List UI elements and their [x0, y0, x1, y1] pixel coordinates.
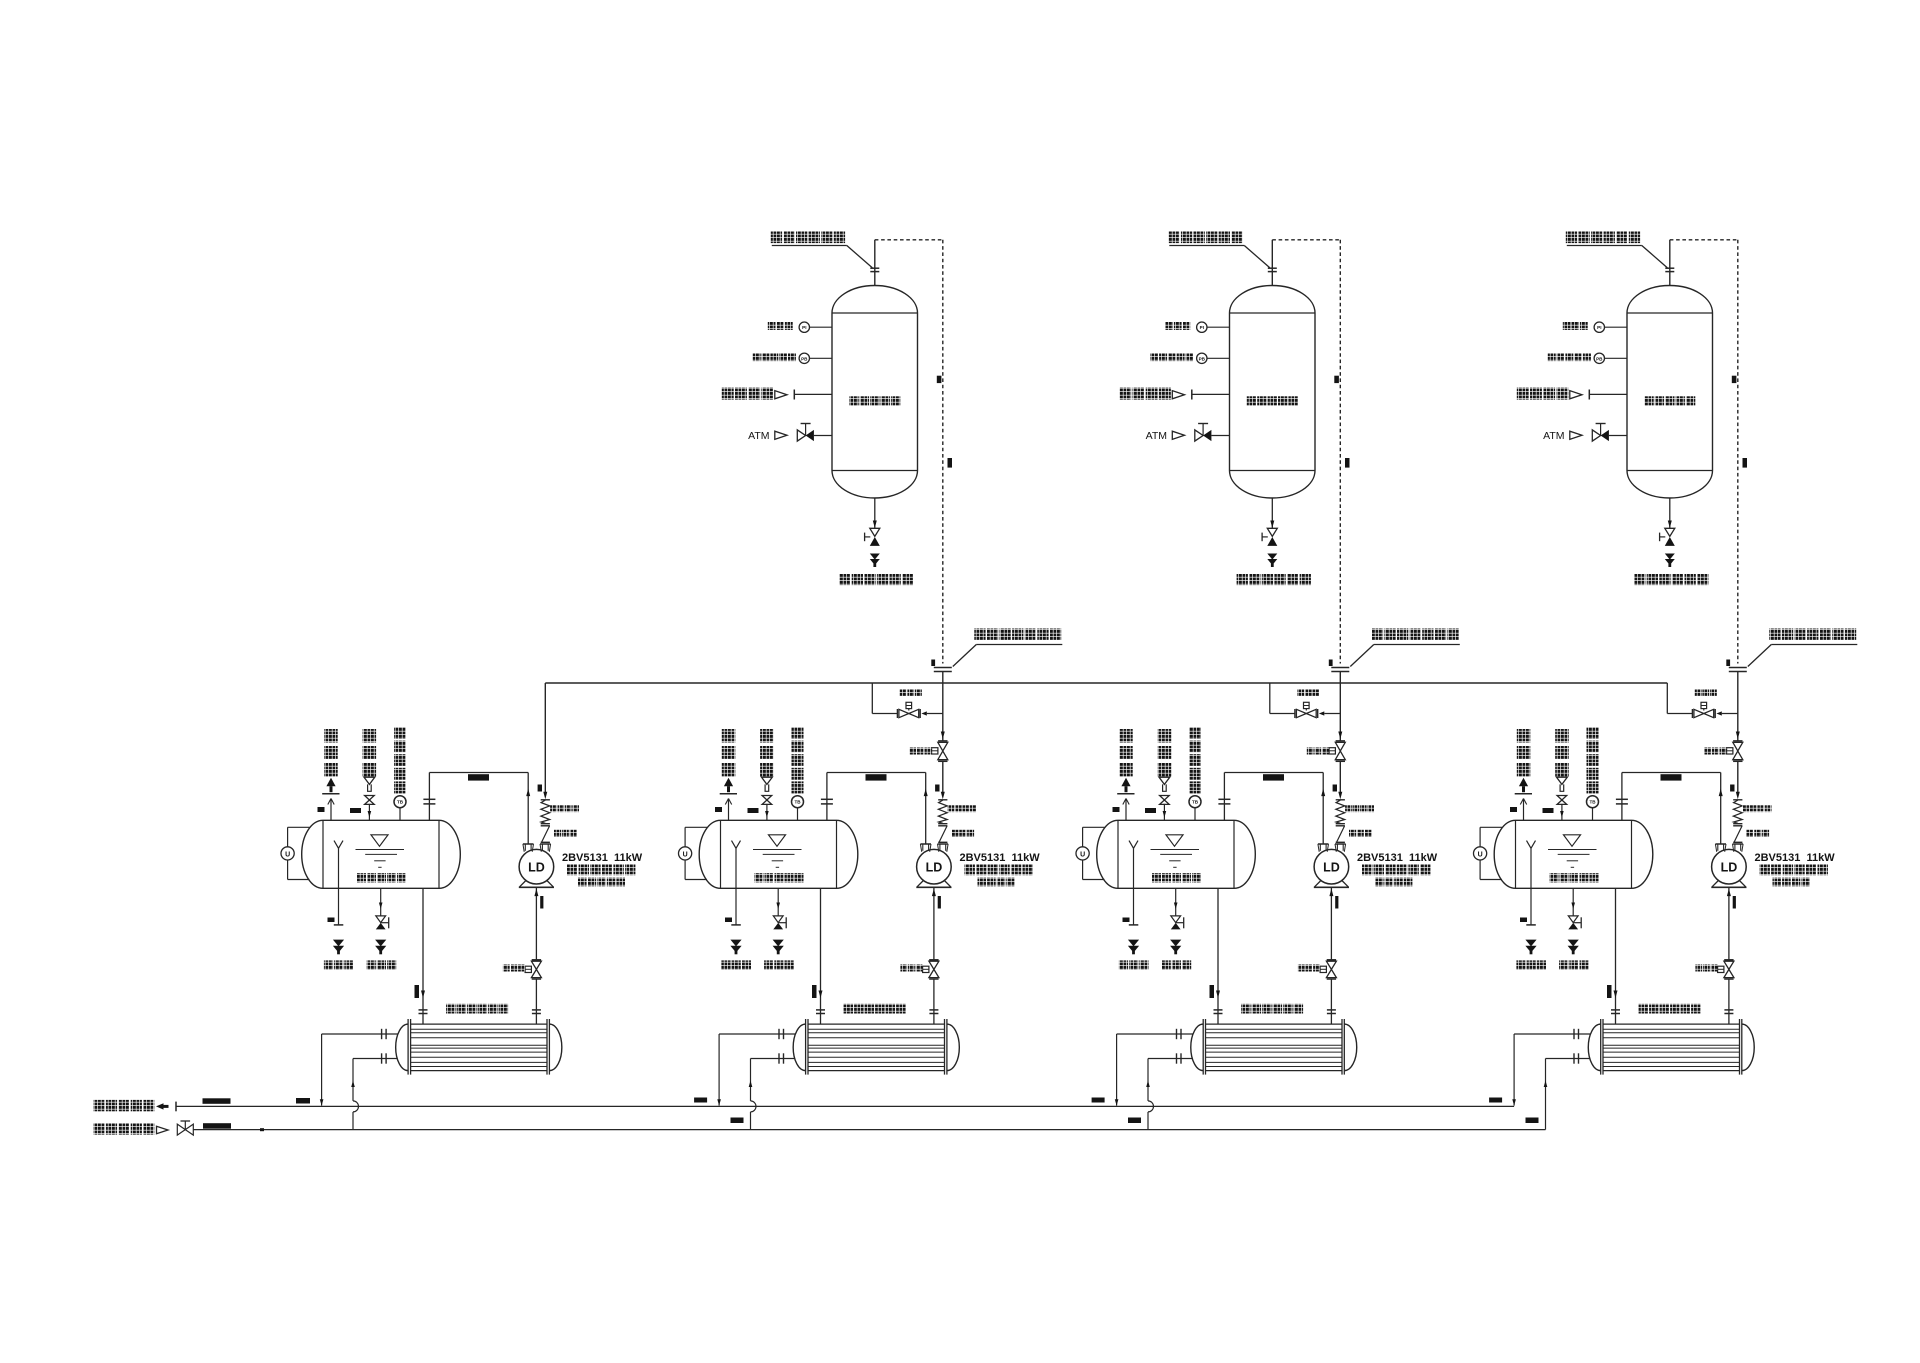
svg-text:TB: TB	[1192, 800, 1199, 805]
svg-text:PI: PI	[1200, 325, 1204, 330]
svg-text:U: U	[1080, 851, 1085, 858]
svg-text:TB: TB	[1589, 800, 1596, 805]
svg-text:ATM: ATM	[1146, 430, 1167, 442]
svg-text:U: U	[683, 851, 688, 858]
svg-text:U: U	[1478, 851, 1483, 858]
svg-text:U: U	[285, 851, 290, 858]
svg-text:LD: LD	[926, 860, 943, 874]
svg-text:ATM: ATM	[1543, 430, 1564, 442]
svg-text:PB: PB	[801, 356, 808, 361]
svg-text:LD: LD	[1721, 860, 1738, 874]
svg-text:LD: LD	[528, 860, 545, 874]
svg-text:PI: PI	[802, 325, 806, 330]
svg-text:PB: PB	[1199, 356, 1206, 361]
svg-text:2BV5131 11kW: 2BV5131 11kW	[960, 852, 1041, 864]
svg-text:LD: LD	[1323, 860, 1340, 874]
svg-text:PI: PI	[1597, 325, 1601, 330]
svg-text:ATM: ATM	[748, 430, 769, 442]
svg-text:TB: TB	[794, 800, 801, 805]
svg-text:2BV5131 11kW: 2BV5131 11kW	[562, 852, 643, 864]
svg-text:PB: PB	[1596, 356, 1603, 361]
svg-text:2BV5131 11kW: 2BV5131 11kW	[1755, 852, 1836, 864]
svg-text:2BV5131 11kW: 2BV5131 11kW	[1357, 852, 1438, 864]
svg-text:TB: TB	[397, 800, 404, 805]
